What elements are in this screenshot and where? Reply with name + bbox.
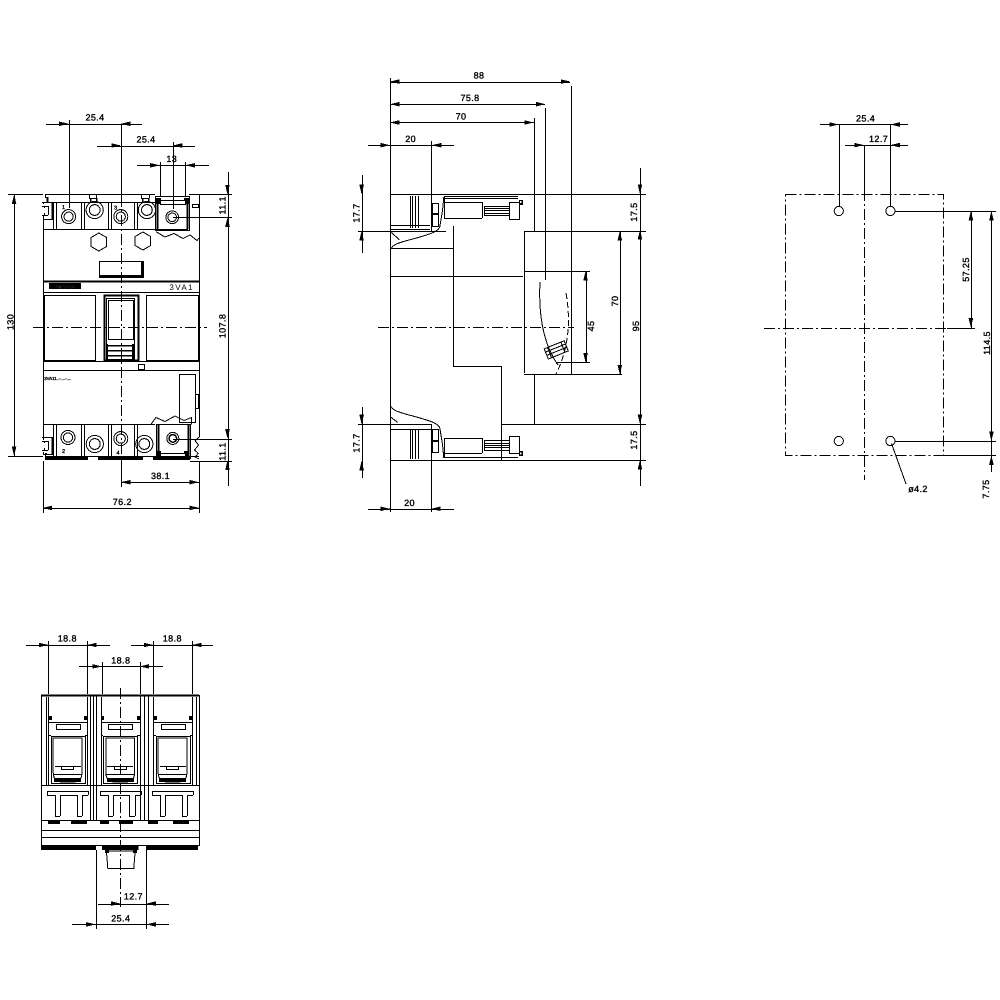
svg-text:25.4: 25.4 xyxy=(111,913,130,923)
svg-text:45: 45 xyxy=(586,321,596,332)
svg-text:ø4.2: ø4.2 xyxy=(908,484,928,494)
svg-text:18.8: 18.8 xyxy=(163,634,182,644)
svg-text:12.7: 12.7 xyxy=(124,891,143,901)
svg-text:20: 20 xyxy=(404,498,415,508)
svg-text:130: 130 xyxy=(6,314,16,330)
svg-text:3: 3 xyxy=(114,206,117,212)
svg-text:20: 20 xyxy=(405,134,416,144)
svg-text:75.8: 75.8 xyxy=(460,93,479,103)
svg-text:3VA1: 3VA1 xyxy=(169,283,194,292)
svg-text:18.8: 18.8 xyxy=(111,656,130,666)
svg-text:25.4: 25.4 xyxy=(856,114,875,124)
svg-text:76.2: 76.2 xyxy=(113,497,132,507)
svg-text:70: 70 xyxy=(456,112,467,122)
svg-text:57.25: 57.25 xyxy=(961,257,971,282)
svg-text:3VA11..-....-....: 3VA11..-....-.... xyxy=(44,376,71,381)
svg-text:88: 88 xyxy=(474,71,485,81)
svg-text:38.1: 38.1 xyxy=(151,471,170,481)
svg-text:12.7: 12.7 xyxy=(869,134,888,144)
svg-text:95: 95 xyxy=(631,321,641,332)
svg-text:11.1: 11.1 xyxy=(218,442,228,460)
svg-text:SIEMENS: SIEMENS xyxy=(56,285,75,290)
svg-text:1: 1 xyxy=(62,205,65,211)
svg-text:25.4: 25.4 xyxy=(136,134,155,144)
svg-text:114.5: 114.5 xyxy=(982,331,992,355)
svg-text:17.5: 17.5 xyxy=(629,202,639,221)
svg-text:18.8: 18.8 xyxy=(58,634,77,644)
svg-text:11.1: 11.1 xyxy=(218,196,228,214)
svg-text:13: 13 xyxy=(166,154,177,164)
svg-text:2: 2 xyxy=(62,449,65,455)
svg-text:17.5: 17.5 xyxy=(629,430,639,449)
svg-text:107.8: 107.8 xyxy=(218,314,228,339)
svg-text:17.7: 17.7 xyxy=(352,433,362,452)
svg-text:4: 4 xyxy=(116,451,119,457)
svg-text:7.75: 7.75 xyxy=(981,479,991,498)
svg-text:70: 70 xyxy=(610,296,620,307)
svg-text:17.7: 17.7 xyxy=(352,203,362,222)
svg-text:25.4: 25.4 xyxy=(85,113,104,123)
